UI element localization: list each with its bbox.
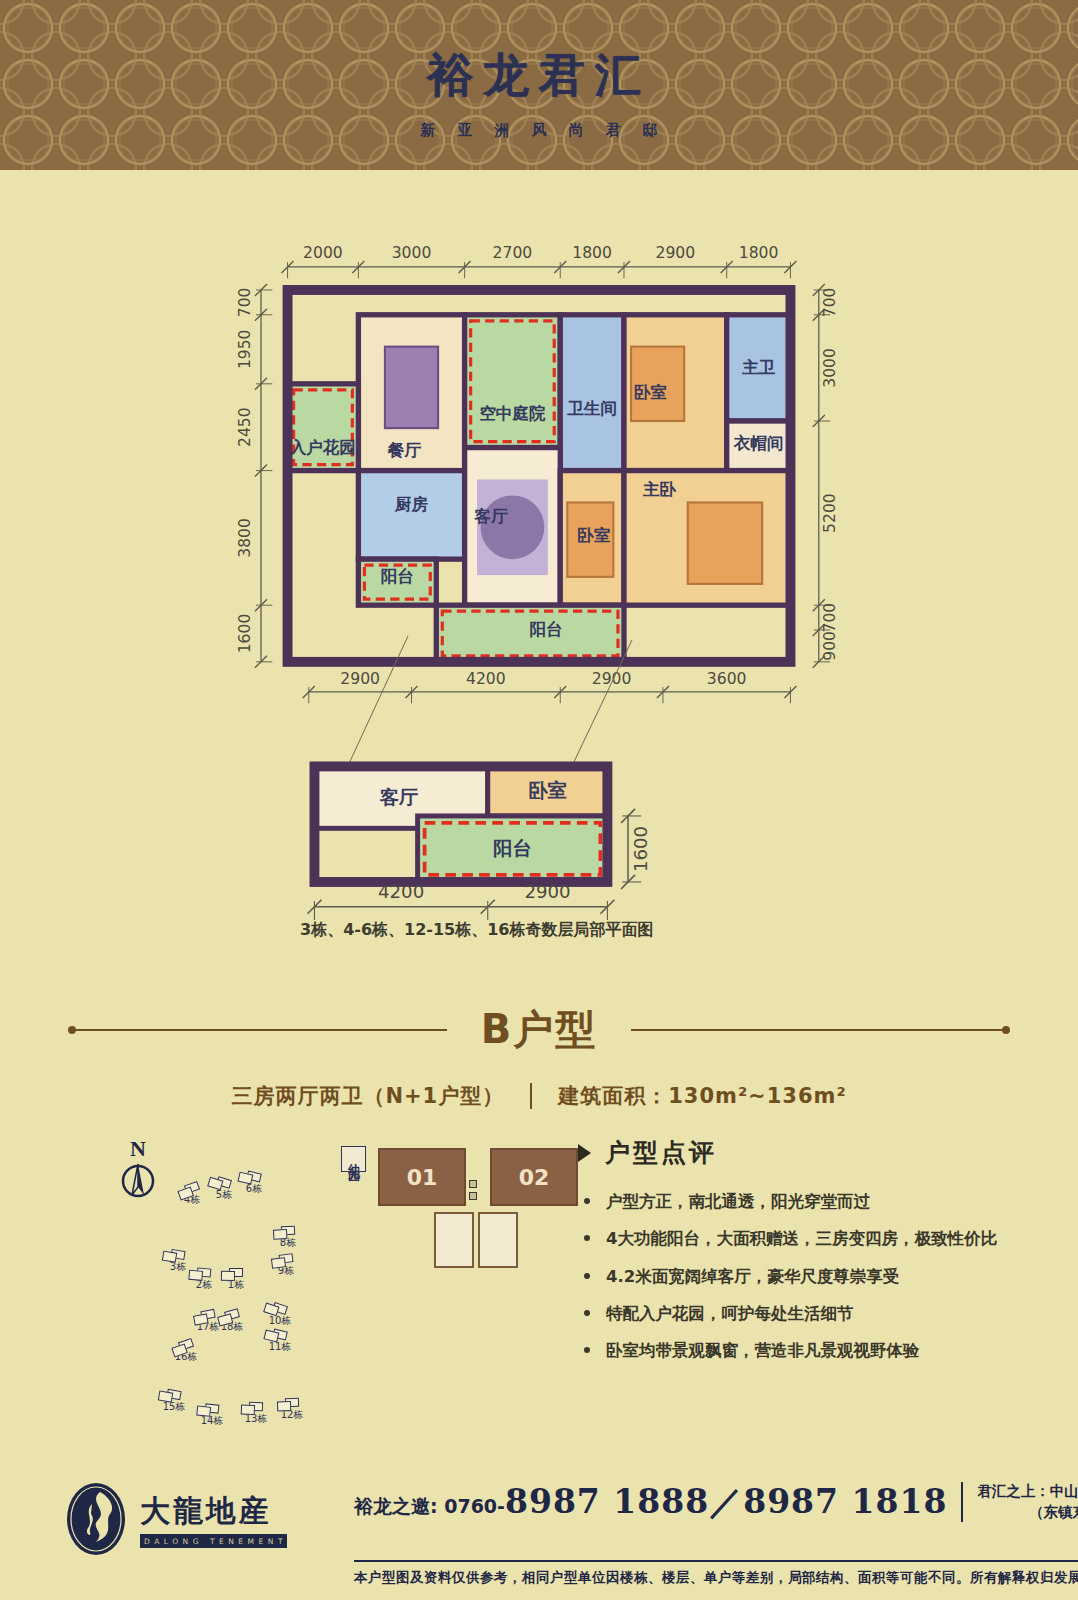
phone-numbers: 8987 1888／8987 1818 [505,1480,947,1525]
site-building: 18栋 [215,1310,249,1334]
building-icon [279,1253,294,1264]
svg-text:2900: 2900 [592,670,632,688]
review-bullet: 户型方正，南北通透，阳光穿堂而过 [578,1191,1048,1213]
svg-text:厨房: 厨房 [394,495,429,514]
svg-text:2450: 2450 [236,407,254,447]
unit-02-block: 02 [490,1148,578,1206]
svg-text:1800: 1800 [572,244,612,262]
mini-floorplan-drawing: 客厅卧室阳台420029001600 [300,752,692,944]
building-label: 11栋 [263,1340,297,1354]
svg-text:2700: 2700 [493,244,533,262]
spec-layout: 三房两厅两卫（N+1户型） [231,1082,504,1110]
title-rule-right [631,1029,1008,1031]
bullet-dot-icon [584,1198,590,1204]
site-building: 9栋 [269,1254,303,1278]
unit-key-diagram: 01 02 [378,1140,578,1270]
review-section: 户型点评 户型方正，南北通透，阳光穿堂而过4大功能阳台，大面积赠送，三房变四房，… [578,1136,1048,1377]
phone-label: 裕龙之邀: 0760- [354,1494,505,1520]
site-plan: N 幼儿园 4栋5栋6栋3栋2栋1栋8栋9栋17栋18栋16栋10栋11栋15栋… [92,1128,372,1428]
site-building: 15栋 [157,1390,191,1414]
site-building: 13栋 [239,1402,273,1426]
address-line1: 君汇之上：中山市火炬开发区东阳南路10号 [977,1481,1078,1502]
site-building: 5栋 [207,1178,241,1202]
dragon-flame-logo-icon [64,1480,128,1558]
svg-text:3000: 3000 [392,244,432,262]
svg-text:700: 700 [821,603,839,633]
svg-text:1600: 1600 [630,826,651,872]
building-icon [272,1302,288,1315]
svg-text:900: 900 [821,631,839,661]
review-header: 户型点评 [578,1136,1048,1169]
building-label: 10栋 [263,1314,297,1328]
svg-text:3600: 3600 [707,670,747,688]
title-rule-left [70,1029,447,1031]
site-building: 2栋 [187,1268,221,1292]
svg-text:卧室: 卧室 [634,383,667,402]
review-bullet-text: 户型方正，南北通透，阳光穿堂而过 [606,1191,870,1213]
mini-floorplan: 客厅卧室阳台420029001600 [300,752,692,948]
developer-logo: 大龍地産 DALONG TENEMENT [64,1452,336,1587]
building-label: 15栋 [157,1400,191,1414]
north-compass: N [116,1136,160,1204]
svg-text:空中庭院: 空中庭院 [479,404,546,423]
svg-text:主卫: 主卫 [742,358,776,377]
triangle-bullet-icon [578,1144,591,1162]
svg-text:客厅: 客厅 [379,786,419,809]
svg-text:4200: 4200 [466,670,506,688]
svg-text:餐厅: 餐厅 [387,441,422,460]
svg-text:主卧: 主卧 [643,480,677,499]
spec-divider [530,1083,532,1109]
site-building: 1栋 [219,1268,253,1292]
svg-text:5200: 5200 [821,493,839,533]
developer-name-cn: 大龍地産 [140,1491,287,1532]
svg-text:2900: 2900 [656,244,696,262]
svg-text:700: 700 [236,288,254,318]
elevator-icon [469,1192,477,1200]
bullet-dot-icon [584,1235,590,1241]
north-label: N [116,1136,160,1162]
svg-text:卫生间: 卫生间 [566,399,617,418]
review-bullet: 4大功能阳台，大面积赠送，三房变四房，极致性价比 [578,1228,1048,1250]
developer-name-en: DALONG TENEMENT [140,1534,287,1548]
svg-text:2000: 2000 [303,244,343,262]
review-bullet: 4.2米面宽阔绰客厅，豪华尺度尊崇享受 [578,1266,1048,1288]
stairwell-outline [478,1212,518,1268]
svg-text:阳台: 阳台 [529,620,562,639]
review-bullet: 特配入户花园，呵护每处生活细节 [578,1303,1048,1325]
svg-text:1950: 1950 [236,329,254,369]
svg-text:700: 700 [821,288,839,318]
spec-area: 建筑面积：130m²~136m² [558,1082,846,1110]
disclaimer-text: 本户型图及资料仅供参考，相同户型单位因楼栋、楼层、单户等差别，局部结构、面积等可… [354,1569,1078,1587]
bullet-dot-icon [584,1310,590,1316]
building-icon [281,1226,295,1236]
building-label: 14栋 [195,1414,229,1428]
svg-text:阳台: 阳台 [381,567,414,586]
svg-text:衣帽间: 衣帽间 [733,434,784,453]
svg-text:客厅: 客厅 [474,507,509,526]
main-floorplan: 餐厅空中庭院卫生间卧室主卫衣帽间入户花园厨房阳台客厅卧室主卧阳台20003000… [199,228,879,746]
svg-text:3000: 3000 [821,348,839,388]
footer: 大龍地産 DALONG TENEMENT 裕龙之邀: 0760- 8987 18… [64,1452,1014,1587]
svg-text:卧室: 卧室 [577,526,610,545]
phone-block: 裕龙之邀: 0760- 8987 1888／8987 1818 [354,1480,947,1525]
header-banner: 裕龙君汇 新亚洲风尚君邸 [0,0,1078,170]
main-floorplan-drawing: 餐厅空中庭院卫生间卧室主卫衣帽间入户花园厨房阳台客厅卧室主卧阳台20003000… [199,228,879,742]
review-bullet-text: 4.2米面宽阔绰客厅，豪华尺度尊崇享受 [606,1266,899,1288]
review-bullet: 卧室均带景观飘窗，营造非凡景观视野体验 [578,1340,1048,1362]
unit-type-title: B户型 [481,1002,598,1057]
building-icon [249,1402,263,1411]
site-building: 6栋 [237,1172,271,1196]
building-label: 5栋 [207,1188,241,1202]
site-building: 16栋 [169,1340,203,1364]
site-building: 10栋 [263,1304,297,1328]
building-icon [216,1176,232,1189]
project-subtitle: 新亚洲风尚君邸 [399,121,680,140]
address-line2: （东镇东一路与东阳南路交汇处） [977,1502,1078,1523]
svg-text:入户花园: 入户花园 [289,438,357,457]
address-block: 君汇之上：中山市火炬开发区东阳南路10号 （东镇东一路与东阳南路交汇处） [977,1481,1078,1523]
elevator-icon [469,1180,477,1188]
building-icon [205,1403,220,1413]
site-building: 11栋 [263,1330,297,1354]
svg-text:阳台: 阳台 [493,837,532,860]
svg-text:1600: 1600 [236,614,254,654]
building-icon [170,1249,185,1260]
building-icon [246,1171,262,1183]
review-title: 户型点评 [605,1136,717,1169]
site-building: 12栋 [275,1398,309,1422]
site-building: 4栋 [175,1183,209,1207]
svg-text:卧室: 卧室 [528,779,567,802]
svg-text:1800: 1800 [739,244,779,262]
spec-row: 三房两厅两卫（N+1户型） 建筑面积：130m²~136m² [0,1082,1078,1110]
building-icon [197,1267,212,1277]
svg-text:3800: 3800 [236,518,254,558]
bullet-dot-icon [584,1273,590,1279]
kindergarten-label: 幼儿园 [341,1146,366,1172]
review-bullet-text: 特配入户花园，呵护每处生活细节 [606,1303,854,1325]
stairwell-outline [434,1212,474,1268]
bullet-dot-icon [584,1347,590,1353]
building-icon [285,1398,299,1407]
building-icon [224,1308,240,1320]
site-building: 14栋 [195,1404,229,1428]
svg-text:2900: 2900 [524,881,570,902]
svg-text:2900: 2900 [340,670,380,688]
building-label: 2栋 [187,1278,221,1292]
building-icon [166,1389,181,1400]
footer-rule [354,1560,1078,1562]
review-bullet-text: 卧室均带景观飘窗，营造非凡景观视野体验 [606,1340,920,1362]
unit-01-block: 01 [378,1148,466,1206]
building-icon [272,1328,288,1340]
site-building: 8栋 [271,1226,305,1250]
section-title-row: B户型 [70,1002,1008,1057]
building-icon [200,1309,215,1321]
footer-divider [961,1482,963,1522]
building-label: 6栋 [237,1182,271,1196]
project-title: 裕龙君汇 [427,45,651,107]
plan-caption: 3栋、4-6栋、12-15栋、16栋奇数层局部平面图 [300,920,653,941]
svg-text:4200: 4200 [378,881,424,902]
compass-icon [119,1162,157,1200]
review-bullet-text: 4大功能阳台，大面积赠送，三房变四房，极致性价比 [606,1228,997,1250]
building-icon [229,1268,243,1277]
